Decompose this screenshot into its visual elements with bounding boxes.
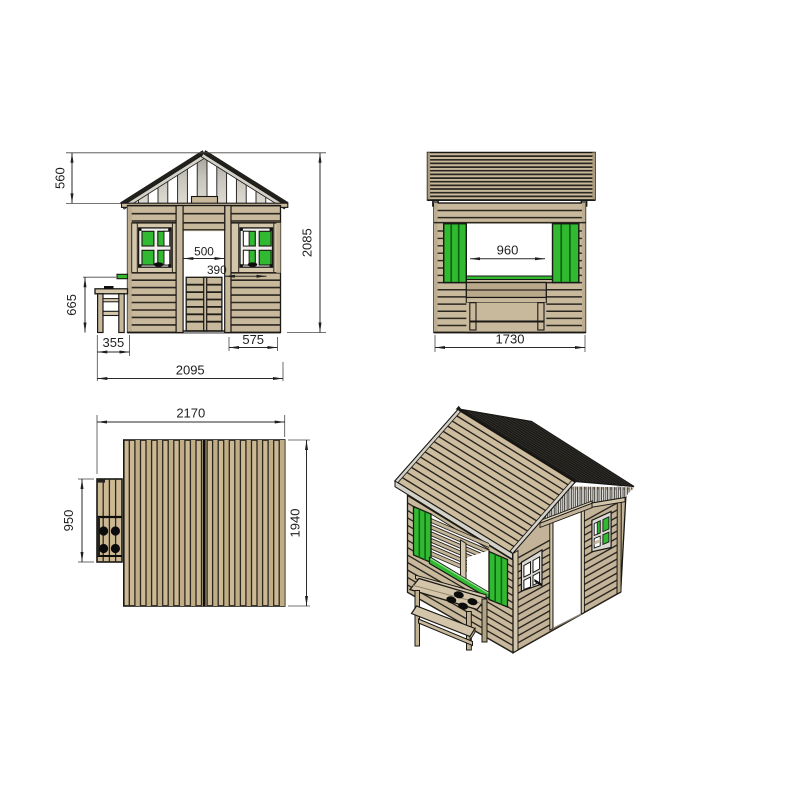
svg-text:2085: 2085 [300,228,315,257]
svg-text:390: 390 [207,263,227,277]
svg-text:950: 950 [61,510,76,532]
svg-text:2170: 2170 [176,406,205,421]
svg-text:1940: 1940 [288,509,303,538]
svg-text:355: 355 [103,335,125,350]
svg-text:960: 960 [497,243,519,258]
svg-text:575: 575 [242,332,264,347]
svg-text:1730: 1730 [496,332,525,347]
svg-text:560: 560 [53,167,68,189]
svg-text:500: 500 [194,244,214,258]
svg-text:665: 665 [64,294,79,316]
svg-text:2095: 2095 [176,363,205,378]
